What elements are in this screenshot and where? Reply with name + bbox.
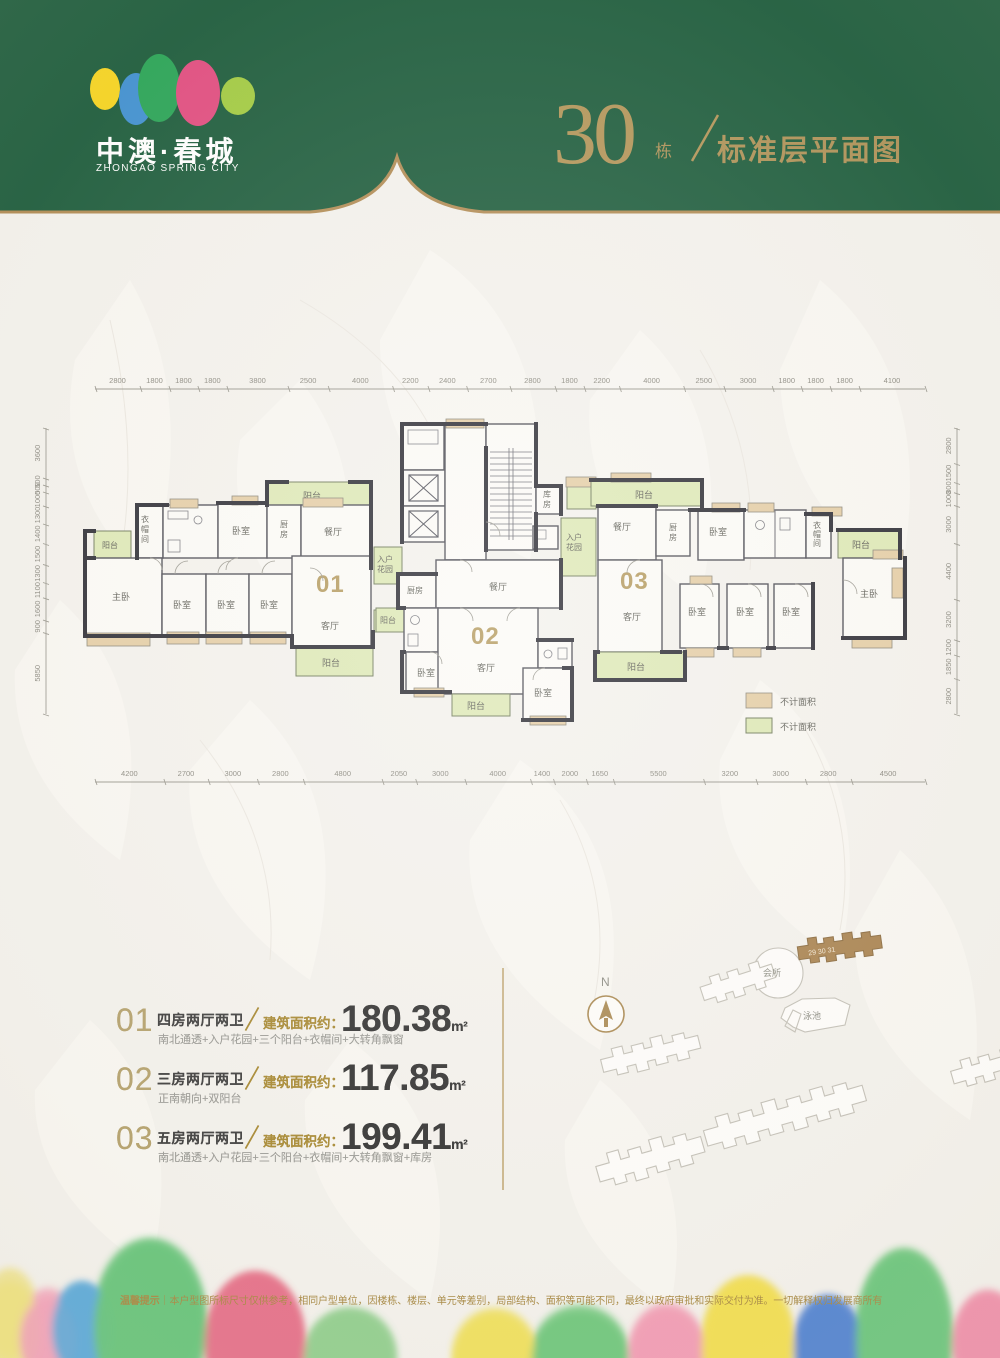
svg-text:库: 库 bbox=[543, 489, 551, 499]
svg-text:4000: 4000 bbox=[352, 376, 369, 385]
svg-text:衣: 衣 bbox=[813, 520, 821, 530]
svg-text:1500: 1500 bbox=[944, 465, 953, 482]
svg-text:1850: 1850 bbox=[944, 658, 953, 675]
svg-text:间: 间 bbox=[141, 535, 149, 544]
svg-text:卧室: 卧室 bbox=[534, 687, 552, 698]
svg-text:2500: 2500 bbox=[300, 376, 317, 385]
svg-text:1600: 1600 bbox=[33, 601, 42, 618]
svg-text:2800: 2800 bbox=[109, 376, 126, 385]
svg-text:1800: 1800 bbox=[561, 376, 578, 385]
svg-text:房: 房 bbox=[669, 532, 677, 542]
svg-text:阳台: 阳台 bbox=[380, 615, 396, 625]
svg-text:2800: 2800 bbox=[272, 769, 289, 778]
svg-text:2800: 2800 bbox=[944, 688, 953, 705]
svg-text:厨: 厨 bbox=[669, 523, 677, 532]
svg-text:不计面积: 不计面积 bbox=[780, 721, 816, 732]
svg-text:卧室: 卧室 bbox=[217, 599, 235, 610]
svg-text:主卧: 主卧 bbox=[112, 591, 130, 602]
svg-text:客厅: 客厅 bbox=[321, 620, 339, 631]
svg-text:4400: 4400 bbox=[944, 563, 953, 580]
svg-text:1800: 1800 bbox=[778, 376, 795, 385]
svg-text:3000: 3000 bbox=[772, 769, 789, 778]
svg-text:餐厅: 餐厅 bbox=[489, 581, 507, 592]
svg-text:2000: 2000 bbox=[562, 769, 579, 778]
svg-text:厨: 厨 bbox=[280, 520, 288, 529]
svg-text:帽: 帽 bbox=[813, 529, 821, 539]
svg-text:5500: 5500 bbox=[650, 769, 667, 778]
svg-text:3000: 3000 bbox=[944, 516, 953, 533]
svg-text:不计面积: 不计面积 bbox=[780, 696, 816, 707]
svg-text:2700: 2700 bbox=[178, 769, 195, 778]
svg-text:阳台: 阳台 bbox=[852, 539, 870, 550]
svg-text:2050: 2050 bbox=[391, 769, 408, 778]
svg-text:帽: 帽 bbox=[141, 524, 149, 534]
svg-text:2800: 2800 bbox=[524, 376, 541, 385]
svg-text:3200: 3200 bbox=[721, 769, 738, 778]
svg-text:阳台: 阳台 bbox=[635, 489, 653, 500]
svg-text:1800: 1800 bbox=[807, 376, 824, 385]
svg-text:2200: 2200 bbox=[593, 376, 610, 385]
svg-text:02: 02 bbox=[471, 623, 500, 650]
svg-text:1000: 1000 bbox=[944, 491, 953, 508]
svg-text:2800: 2800 bbox=[820, 769, 837, 778]
svg-text:卧室: 卧室 bbox=[688, 606, 706, 617]
svg-text:房: 房 bbox=[543, 499, 551, 509]
svg-text:客厅: 客厅 bbox=[477, 662, 495, 673]
svg-text:3600: 3600 bbox=[33, 445, 42, 462]
svg-text:衣: 衣 bbox=[141, 514, 149, 524]
svg-text:泳池: 泳池 bbox=[803, 1010, 821, 1021]
svg-text:卧室: 卧室 bbox=[709, 526, 727, 537]
svg-text:5850: 5850 bbox=[33, 665, 42, 682]
svg-text:1800: 1800 bbox=[146, 376, 163, 385]
svg-text:阳台: 阳台 bbox=[102, 540, 118, 550]
svg-text:花园: 花园 bbox=[377, 564, 393, 574]
svg-text:卧室: 卧室 bbox=[782, 606, 800, 617]
svg-text:4500: 4500 bbox=[880, 769, 897, 778]
svg-text:2200: 2200 bbox=[402, 376, 419, 385]
svg-text:4000: 4000 bbox=[489, 769, 506, 778]
svg-text:入户: 入户 bbox=[566, 532, 582, 542]
svg-text:花园: 花园 bbox=[566, 542, 582, 552]
svg-text:2400: 2400 bbox=[439, 376, 456, 385]
svg-text:1200: 1200 bbox=[944, 639, 953, 656]
svg-text:900: 900 bbox=[33, 620, 42, 633]
svg-text:03: 03 bbox=[620, 568, 649, 595]
svg-text:餐厅: 餐厅 bbox=[324, 526, 342, 537]
svg-text:3800: 3800 bbox=[249, 376, 266, 385]
svg-text:3000: 3000 bbox=[740, 376, 757, 385]
svg-text:卧室: 卧室 bbox=[173, 599, 191, 610]
svg-text:1800: 1800 bbox=[175, 376, 192, 385]
svg-text:餐厅: 餐厅 bbox=[613, 521, 631, 532]
svg-text:1650: 1650 bbox=[591, 769, 608, 778]
svg-text:1300: 1300 bbox=[33, 507, 42, 524]
svg-text:01: 01 bbox=[316, 571, 345, 598]
svg-text:卧室: 卧室 bbox=[260, 599, 278, 610]
svg-text:卧室: 卧室 bbox=[417, 667, 435, 678]
svg-text:1500: 1500 bbox=[33, 546, 42, 563]
svg-text:1400: 1400 bbox=[33, 525, 42, 542]
svg-text:1100: 1100 bbox=[33, 582, 42, 598]
svg-text:阳台: 阳台 bbox=[467, 700, 485, 711]
svg-text:会所: 会所 bbox=[763, 967, 781, 978]
svg-text:2500: 2500 bbox=[695, 376, 712, 385]
svg-text:4000: 4000 bbox=[643, 376, 660, 385]
svg-text:1300: 1300 bbox=[33, 565, 42, 582]
svg-text:3000: 3000 bbox=[432, 769, 449, 778]
svg-text:入户: 入户 bbox=[377, 554, 393, 564]
svg-text:1400: 1400 bbox=[534, 769, 551, 778]
svg-text:1000: 1000 bbox=[33, 491, 42, 508]
svg-text:阳台: 阳台 bbox=[627, 661, 645, 672]
svg-text:厨房: 厨房 bbox=[407, 585, 423, 595]
svg-text:3000: 3000 bbox=[224, 769, 241, 778]
svg-text:4100: 4100 bbox=[884, 376, 901, 385]
svg-text:1800: 1800 bbox=[836, 376, 853, 385]
svg-text:主卧: 主卧 bbox=[860, 588, 878, 599]
svg-text:2700: 2700 bbox=[480, 376, 497, 385]
svg-text:4800: 4800 bbox=[334, 769, 351, 778]
svg-text:1800: 1800 bbox=[204, 376, 221, 385]
svg-text:卧室: 卧室 bbox=[736, 606, 754, 617]
svg-text:客厅: 客厅 bbox=[623, 611, 641, 622]
svg-text:房: 房 bbox=[280, 529, 288, 539]
svg-text:阳台: 阳台 bbox=[322, 657, 340, 668]
svg-text:卧室: 卧室 bbox=[232, 525, 250, 536]
svg-text:3200: 3200 bbox=[944, 611, 953, 628]
svg-text:2800: 2800 bbox=[944, 437, 953, 454]
svg-text:4200: 4200 bbox=[121, 769, 138, 778]
svg-text:间: 间 bbox=[813, 539, 821, 548]
